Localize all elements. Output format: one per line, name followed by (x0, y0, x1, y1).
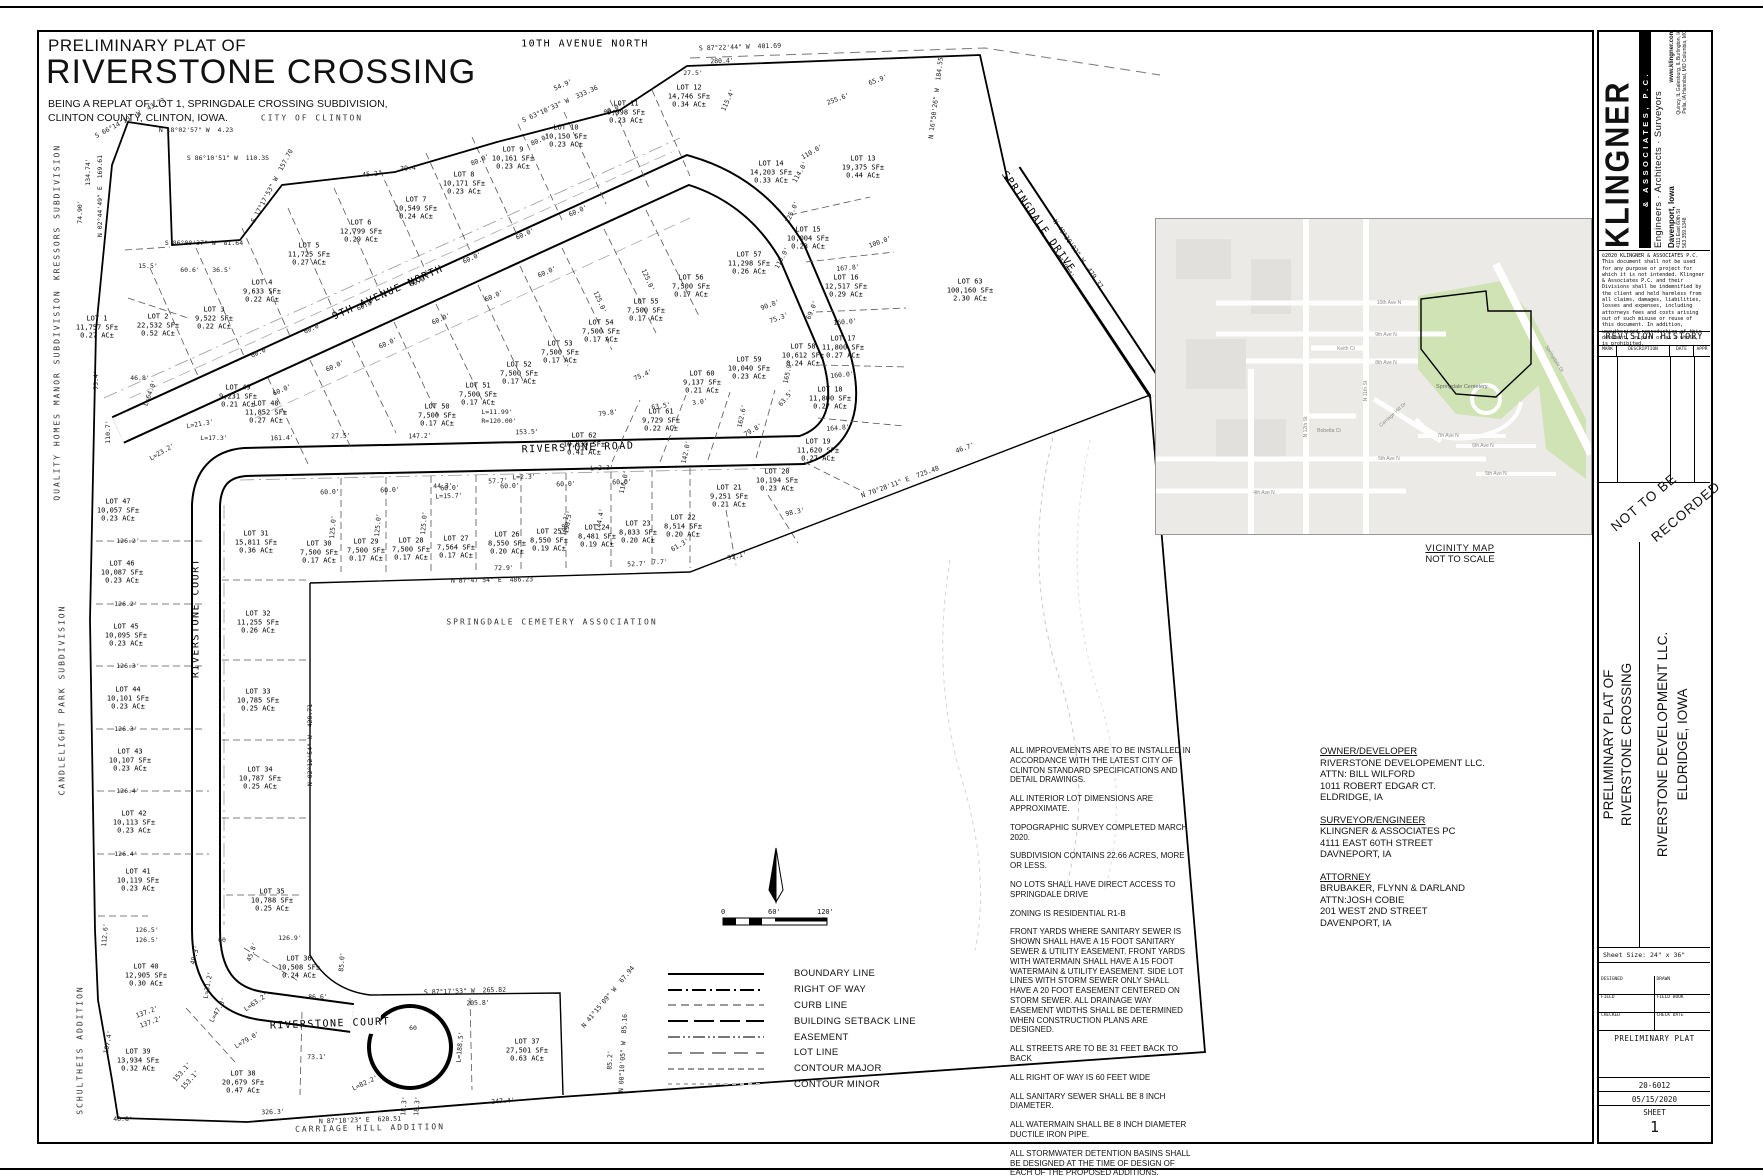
sheet-number: 1 (1599, 1118, 1710, 1138)
legend-row: BOUNDARY LINE (668, 966, 916, 982)
designed-drawn-row: DESIGNED DRAWN (1599, 976, 1710, 995)
legend-label: BOUNDARY LINE (794, 968, 875, 979)
road-9th-riverstone-loop (118, 170, 1158, 1090)
client-line-1: RIVERSTONE DEVELOPMENT LLC. (1653, 542, 1673, 947)
contacts-block: OWNER/DEVELOPER RIVERSTONE DEVELOPEMENT … (1320, 746, 1560, 929)
note-item: ALL SANITARY SEWER SHALL BE 8 INCH DIAME… (1010, 1092, 1192, 1112)
project-title-line-2: RIVERSTONE CROSSING (1618, 542, 1636, 947)
plat-sheet: PRELIMINARY PLAT OF RIVERSTONE CROSSING … (0, 0, 1763, 1176)
firm-sub: & ASSOCIATES, P.C. (1639, 30, 1651, 248)
legend-label: RIGHT OF WAY (794, 984, 866, 995)
list-item: 201 WEST 2ND STREET (1320, 906, 1560, 918)
firm-name: KLINGNER (1601, 30, 1636, 248)
legend-label: EASEMENT (794, 1032, 849, 1043)
rev-col-appr: APPR (1694, 345, 1710, 356)
legend-label: CONTOUR MINOR (794, 1079, 880, 1090)
plat-subtitle-1: BEING A REPLAT OF LOT 1, SPRINGDALE CROS… (48, 98, 388, 110)
firm-phone: 563.359.1348 (1682, 186, 1689, 248)
note-item: ZONING IS RESIDENTIAL R1-B (1010, 909, 1192, 919)
surveyor-lines: KLINGNER & ASSOCIATES PC4111 EAST 60TH S… (1320, 826, 1560, 861)
legend-line-sample (668, 1036, 764, 1038)
legend-line-sample (668, 1083, 764, 1085)
list-item: BRUBAKER, FLYNN & DARLAND (1320, 883, 1560, 895)
note-item: FRONT YARDS WHERE SANITARY SEWER IS SHOW… (1010, 927, 1192, 1035)
attorney-lines: BRUBAKER, FLYNN & DARLANDATTN:JOSH COBIE… (1320, 883, 1560, 929)
list-item: ATTN: BILL WILFORD (1320, 769, 1560, 781)
legend-label: CURB LINE (794, 1000, 847, 1011)
vicinity-caption: VICINITY MAP NOT TO SCALE (1385, 543, 1535, 565)
vicinity-subtitle: NOT TO SCALE (1385, 554, 1535, 565)
sheet-date: 05/15/2020 (1599, 1092, 1710, 1106)
project-number: 20-6012 (1599, 1078, 1710, 1092)
rev-col-mark: MARK (1599, 345, 1617, 356)
field-label: FIELD (1599, 994, 1655, 1012)
sheet-label: SHEET (1599, 1106, 1710, 1116)
firm-offices-2: Pella, IA Hannibal, MO Columbia, MO (1682, 30, 1689, 115)
revision-history-title: REVISION HISTORY (1599, 332, 1710, 346)
legend-line-sample (668, 1020, 764, 1022)
firm-logo-block: KLINGNER & ASSOCIATES, P.C. Engineers · … (1601, 34, 1709, 248)
firm-tagline: Engineers · Architects · Surveyors (1653, 30, 1664, 248)
checked-label: CHECKED (1599, 1012, 1655, 1030)
vicinity-title: VICINITY MAP (1385, 543, 1535, 554)
project-title-vertical: PRELIMINARY PLAT OF RIVERSTONE CROSSING (1600, 542, 1638, 947)
legend-label: CONTOUR MAJOR (794, 1063, 882, 1074)
drawn-label: DRAWN (1655, 976, 1711, 994)
legend-line-sample (668, 973, 764, 975)
firm-city: Davenport, Iowa (1669, 186, 1676, 248)
north-arrow-icon (769, 848, 783, 902)
client-line-2: ELDRIDGE, IOWA (1673, 542, 1693, 947)
client-title-vertical: RIVERSTONE DEVELOPMENT LLC. ELDRIDGE, IO… (1641, 542, 1709, 947)
field-row: FIELD FIELD BOOK (1599, 994, 1710, 1013)
general-notes: ALL IMPROVEMENTS ARE TO BE INSTALLED IN … (1010, 746, 1192, 1176)
checked-row: CHECKED CHECK DATE (1599, 1012, 1710, 1031)
owner-lines: RIVERSTONE DEVELOPEMENT LLC.ATTN: BILL W… (1320, 758, 1560, 804)
scale-60: 60' (768, 908, 781, 916)
sheet-size-row: Sheet Size: 24" x 36" (1599, 947, 1710, 963)
vicinity-map-graphics (1156, 219, 1591, 534)
scale-120: 120' (817, 908, 834, 916)
note-item: TOPOGRAPHIC SURVEY COMPLETED MARCH 2020. (1010, 823, 1192, 843)
note-item: ALL RIGHT OF WAY IS 60 FEET WIDE (1010, 1073, 1192, 1083)
legend-line-sample (668, 1068, 764, 1070)
attorney-header: ATTORNEY (1320, 872, 1560, 884)
doc-type: PRELIMINARY PLAT (1599, 1030, 1710, 1078)
designed-label: DESIGNED (1599, 976, 1655, 994)
list-item: ELDRIDGE, IA (1320, 792, 1560, 804)
legend-row: LOT LINE (668, 1045, 916, 1061)
owner-header: OWNER/DEVELOPER (1320, 746, 1560, 758)
rev-col-description: DESCRIPTION (1617, 345, 1670, 356)
plat-subtitle-2: CLINTON COUNTY, CLINTON, IOWA. (48, 112, 228, 124)
legend-line-sample (668, 989, 764, 991)
legend-line-sample (668, 1052, 764, 1054)
note-item: NO LOTS SHALL HAVE DIRECT ACCESS TO SPRI… (1010, 880, 1192, 900)
rev-col-date: DATE (1670, 345, 1694, 356)
legend-row: BUILDING SETBACK LINE (668, 1013, 916, 1029)
project-title-line-1: PRELIMINARY PLAT OF (1600, 542, 1618, 947)
legend-label: BUILDING SETBACK LINE (794, 1016, 916, 1027)
legend-row: CONTOUR MINOR (668, 1077, 916, 1093)
title-strip: KLINGNER & ASSOCIATES, P.C. Engineers · … (1597, 30, 1713, 1144)
list-item: DAVENPORT, IA (1320, 918, 1560, 930)
list-item: 1011 ROBERT EDGAR CT. (1320, 781, 1560, 793)
note-item: ALL INTERIOR LOT DIMENSIONS ARE APPROXIM… (1010, 794, 1192, 814)
copyright-disclaimer: ©2020 KLINGNER & ASSOCIATES P.C. This do… (1599, 250, 1710, 332)
legend-row: EASEMENT (668, 1029, 916, 1045)
vicinity-map: 10th Ave N9th Ave NKeith Ct8th Ave NN 11… (1155, 218, 1592, 535)
note-item: ALL STORMWATER DETENTION BASINS SHALL BE… (1010, 1149, 1192, 1176)
list-item: ATTN:JOSH COBIE (1320, 895, 1560, 907)
legend: BOUNDARY LINERIGHT OF WAYCURB LINEBUILDI… (668, 966, 916, 1092)
legend-label: LOT LINE (794, 1047, 838, 1058)
list-item: RIVERSTONE DEVELOPEMENT LLC. (1320, 758, 1560, 770)
legend-row: CONTOUR MAJOR (668, 1061, 916, 1077)
list-item: DAVNEPORT, IA (1320, 849, 1560, 861)
field-book-label: FIELD BOOK (1655, 994, 1711, 1012)
note-item: SUBDIVISION CONTAINS 22.66 ACRES, MORE O… (1010, 851, 1192, 871)
legend-row: CURB LINE (668, 998, 916, 1014)
list-item: KLINGNER & ASSOCIATES PC (1320, 826, 1560, 838)
check-date-label: CHECK DATE (1655, 1012, 1711, 1030)
legend-line-sample (668, 1004, 764, 1006)
plat-title: RIVERSTONE CROSSING (46, 53, 476, 92)
legend-row: RIGHT OF WAY (668, 982, 916, 998)
surveyor-header: SURVEYOR/ENGINEER (1320, 815, 1560, 827)
scale-bar (723, 918, 827, 925)
scale-0: 0 (721, 908, 725, 916)
note-item: ALL IMPROVEMENTS ARE TO BE INSTALLED IN … (1010, 746, 1192, 785)
note-item: ALL WATERMAIN SHALL BE 8 INCH DIAMETER D… (1010, 1120, 1192, 1140)
titles-divider (1639, 542, 1640, 947)
note-item: ALL STREETS ARE TO BE 31 FEET BACK TO BA… (1010, 1044, 1192, 1064)
list-item: 4111 EAST 60TH STREET (1320, 838, 1560, 850)
